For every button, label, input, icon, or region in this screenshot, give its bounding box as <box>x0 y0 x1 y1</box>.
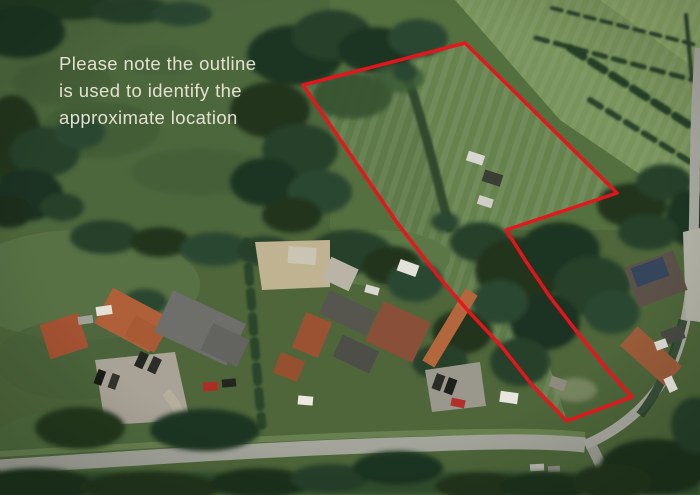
aerial-photo: Please note the outline is used to ident… <box>0 0 700 495</box>
disclaimer-line-3: approximate location <box>59 107 238 128</box>
disclaimer-line-1: Please note the outline <box>59 53 256 74</box>
satellite-image: Please note the outline is used to ident… <box>0 0 700 495</box>
disclaimer-line-2: is used to identify the <box>59 80 242 101</box>
disclaimer-note: Please note the outline is used to ident… <box>59 53 256 128</box>
